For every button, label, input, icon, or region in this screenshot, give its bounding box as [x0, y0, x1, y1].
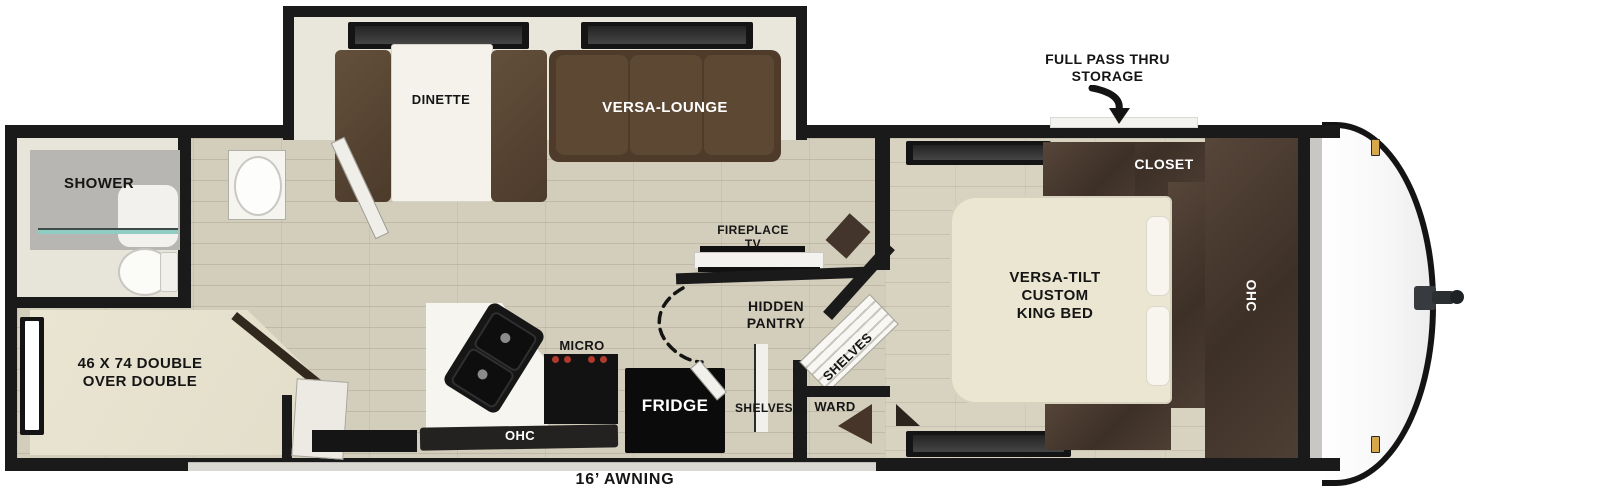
marker-light-top — [1371, 139, 1380, 156]
pass-thru-label-line1: FULL PASS THRU — [1030, 52, 1185, 67]
shower-label: SHOWER — [38, 176, 160, 193]
slideout-window-right — [581, 22, 753, 49]
vanity-sink — [234, 156, 282, 216]
top-wall-rear-segment — [5, 125, 293, 138]
hitch-coupler — [1410, 281, 1464, 315]
king-bed-label-line1: VERSA-TILT — [960, 270, 1150, 287]
awning-rail — [188, 462, 876, 471]
bedroom-ohc-label: OHC — [1243, 261, 1258, 331]
marker-light-bottom — [1371, 436, 1380, 453]
dinette-table — [391, 44, 493, 202]
burner — [600, 356, 607, 363]
pantry-label-line1: HIDDEN — [730, 299, 822, 314]
closet-label: CLOSET — [1118, 157, 1210, 172]
entry-step — [312, 430, 417, 452]
burner — [588, 356, 595, 363]
burner — [564, 356, 571, 363]
burner — [552, 356, 559, 363]
pass-thru-arrow-icon — [1086, 85, 1134, 125]
ward-top-wall — [807, 386, 890, 397]
dinette-bench-right — [491, 50, 547, 202]
dinette-label: DINETTE — [391, 93, 491, 107]
bunk-window — [20, 317, 44, 435]
king-bed-label-line2: CUSTOM — [960, 288, 1150, 305]
micro-label: MICRO — [550, 339, 614, 353]
hitch-ball-socket — [1450, 290, 1464, 304]
ward-label: WARD — [805, 400, 865, 414]
shower-glass-door — [38, 228, 178, 234]
window-glass — [25, 321, 39, 430]
window-glass — [355, 26, 522, 44]
floorplan-canvas: DINETTE VERSA-LOUNGE SHOWER 46 X 74 DOUB… — [0, 0, 1600, 488]
fireplace-label-line1: FIREPLACE — [708, 224, 798, 237]
window-glass — [913, 145, 1044, 160]
shower-pan — [118, 185, 178, 247]
kitchen-ohc-label: OHC — [460, 429, 580, 443]
window-glass — [588, 26, 746, 44]
rear-wall — [5, 125, 17, 471]
fridge-label: FRIDGE — [625, 397, 725, 416]
hall-partition — [754, 344, 768, 432]
bedroom-front-wall — [1298, 138, 1310, 458]
pass-thru-label-line2: STORAGE — [1030, 69, 1185, 84]
window-glass — [913, 435, 1064, 452]
toilet-tank — [160, 252, 178, 292]
pantry-door-swing-arc — [640, 282, 720, 374]
bedroom-window-top — [906, 141, 1051, 165]
stove-micro-unit — [544, 354, 618, 424]
shower-room-bottom-wall — [17, 297, 191, 308]
bunk-label-line1: 46 X 74 DOUBLE — [45, 356, 235, 373]
bunk-label-line2: OVER DOUBLE — [45, 374, 235, 391]
awning-label: 16’ AWNING — [545, 471, 705, 488]
king-bed-label-line3: KING BED — [960, 306, 1150, 323]
bunk-foot-wall — [282, 395, 292, 458]
pantry-label-line2: PANTRY — [730, 316, 822, 331]
versa-lounge-label: VERSA-LOUNGE — [565, 100, 765, 117]
bed-foot-cabinet — [1045, 398, 1171, 450]
